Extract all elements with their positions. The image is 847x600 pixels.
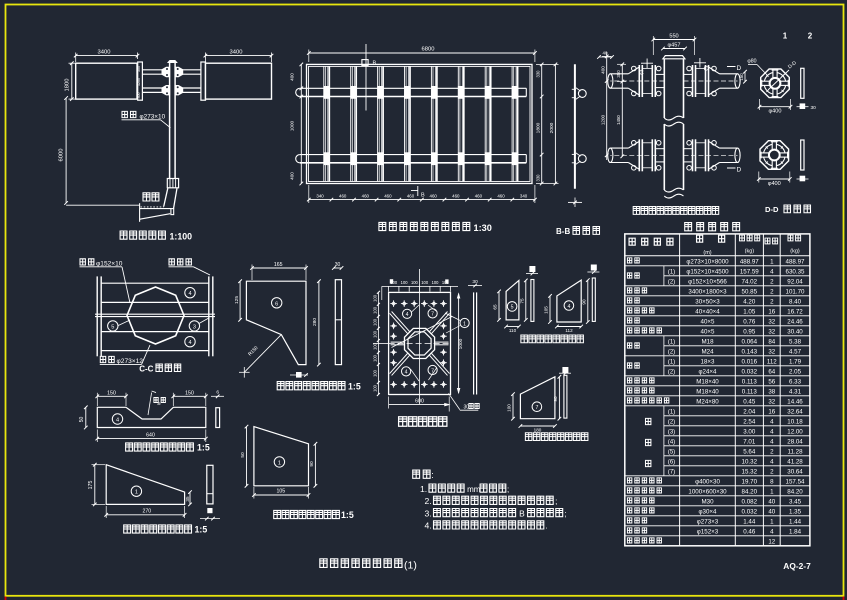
svg-text:75: 75 — [519, 298, 524, 304]
svg-text:2000: 2000 — [549, 122, 555, 133]
svg-text:100: 100 — [411, 280, 419, 285]
svg-text:3: 3 — [193, 324, 196, 330]
svg-text:32: 32 — [768, 349, 775, 356]
svg-text:B: B — [519, 508, 525, 518]
svg-text:30.40: 30.40 — [787, 329, 803, 336]
svg-text:4: 4 — [188, 291, 191, 297]
svg-text:18×3: 18×3 — [701, 359, 715, 366]
svg-text:460: 460 — [407, 194, 415, 199]
svg-text:84.20: 84.20 — [742, 489, 758, 496]
svg-text:1.05: 1.05 — [743, 309, 756, 316]
svg-text:φ80: φ80 — [747, 59, 756, 65]
svg-text:165: 165 — [274, 262, 283, 268]
svg-text:6800: 6800 — [422, 47, 435, 53]
svg-text:4.20: 4.20 — [743, 299, 756, 306]
svg-text:105: 105 — [544, 306, 549, 314]
svg-text:40: 40 — [603, 51, 608, 56]
svg-text:340: 340 — [316, 194, 324, 199]
svg-text:4: 4 — [770, 439, 774, 446]
svg-text:1:5: 1:5 — [197, 443, 210, 453]
svg-text:150: 150 — [185, 390, 194, 396]
svg-text:φ273×10×8000: φ273×10×8000 — [686, 259, 729, 266]
svg-text:3.: 3. — [425, 508, 432, 518]
svg-text:(1): (1) — [668, 360, 675, 366]
svg-text:460: 460 — [452, 194, 460, 199]
svg-text:B-B: B-B — [556, 227, 570, 236]
svg-text:2: 2 — [770, 289, 774, 296]
svg-text:7.01: 7.01 — [743, 439, 756, 446]
svg-text:157.54: 157.54 — [786, 479, 805, 486]
svg-text:(2): (2) — [668, 350, 675, 356]
svg-text:100: 100 — [401, 280, 409, 285]
svg-text:300: 300 — [137, 66, 141, 72]
svg-text:8: 8 — [770, 479, 774, 486]
svg-text:280: 280 — [312, 318, 318, 326]
svg-text:3.00: 3.00 — [743, 429, 756, 436]
svg-text:630.35: 630.35 — [786, 269, 805, 276]
svg-text:50: 50 — [79, 417, 85, 423]
svg-text:56: 56 — [768, 379, 775, 386]
svg-text:2.: 2. — [425, 496, 432, 506]
svg-text:(5): (5) — [668, 450, 675, 456]
svg-text:0.032: 0.032 — [742, 369, 758, 376]
svg-text:4: 4 — [770, 429, 774, 436]
svg-text:15.32: 15.32 — [742, 469, 758, 476]
svg-text:(3): (3) — [668, 430, 675, 436]
svg-text:32: 32 — [768, 329, 775, 336]
svg-text:2.05: 2.05 — [789, 369, 802, 376]
svg-text:460: 460 — [430, 194, 438, 199]
svg-text:1.35: 1.35 — [789, 509, 802, 516]
svg-text:M30: M30 — [701, 499, 714, 506]
svg-text:100: 100 — [372, 342, 377, 350]
svg-text:1.44: 1.44 — [789, 519, 802, 526]
svg-text:12.00: 12.00 — [787, 429, 803, 436]
svg-text:4: 4 — [770, 419, 774, 426]
svg-text:12: 12 — [768, 539, 775, 546]
svg-text:1.84: 1.84 — [789, 529, 802, 536]
svg-text:;: ; — [555, 497, 557, 506]
svg-text:330: 330 — [536, 174, 541, 182]
svg-text:4: 4 — [770, 529, 774, 536]
svg-text:1:5: 1:5 — [341, 510, 354, 520]
svg-text:0.016: 0.016 — [742, 359, 758, 366]
svg-text:100: 100 — [372, 384, 377, 392]
svg-text:.: . — [545, 522, 547, 531]
svg-text:0.76: 0.76 — [743, 319, 756, 326]
svg-text:φ400×30: φ400×30 — [695, 479, 720, 486]
svg-text:0.46: 0.46 — [743, 529, 756, 536]
svg-text:28.04: 28.04 — [787, 439, 803, 446]
svg-text:C-C: C-C — [139, 365, 153, 374]
svg-text:AQ-2-7: AQ-2-7 — [783, 561, 811, 571]
svg-text:8.40: 8.40 — [789, 299, 802, 306]
svg-text:460: 460 — [362, 194, 370, 199]
svg-text:16.72: 16.72 — [787, 309, 803, 316]
svg-text:6: 6 — [216, 390, 219, 396]
svg-text:24.46: 24.46 — [787, 319, 803, 326]
svg-text:M24×80: M24×80 — [696, 399, 719, 406]
svg-text:175: 175 — [88, 481, 94, 490]
svg-text:150: 150 — [107, 390, 116, 396]
svg-text:35: 35 — [185, 496, 190, 502]
svg-text:0.45: 0.45 — [743, 399, 756, 406]
svg-text:460: 460 — [384, 194, 392, 199]
svg-text:100: 100 — [372, 318, 377, 326]
svg-text:84: 84 — [768, 339, 775, 346]
svg-text:7: 7 — [535, 405, 538, 411]
svg-text:460: 460 — [475, 194, 483, 199]
svg-text:D: D — [737, 166, 742, 173]
svg-text:1: 1 — [278, 460, 281, 466]
svg-text:D: D — [737, 65, 742, 72]
svg-text:5: 5 — [511, 305, 514, 311]
svg-text:(kg): (kg) — [790, 249, 800, 255]
svg-text:(6): (6) — [668, 460, 675, 466]
svg-text:1800: 1800 — [536, 122, 542, 133]
svg-text:1: 1 — [770, 519, 774, 526]
svg-text:(2): (2) — [668, 370, 675, 376]
svg-text:40: 40 — [768, 509, 775, 516]
svg-text:19.70: 19.70 — [742, 479, 758, 486]
svg-text:100: 100 — [507, 404, 512, 412]
svg-text:φ24×4: φ24×4 — [699, 369, 718, 376]
svg-text:2.54: 2.54 — [743, 419, 756, 426]
svg-text:6: 6 — [275, 301, 278, 307]
svg-text:100: 100 — [421, 280, 429, 285]
svg-text:1.79: 1.79 — [789, 359, 802, 366]
svg-text:4.31: 4.31 — [789, 389, 802, 396]
svg-text:φ400: φ400 — [769, 109, 782, 115]
svg-text:100: 100 — [372, 354, 377, 362]
svg-text:;: ; — [507, 485, 509, 494]
svg-text:0.113: 0.113 — [742, 379, 758, 386]
svg-text:φ273×10: φ273×10 — [140, 113, 166, 120]
svg-text:1000×600×30: 1000×600×30 — [688, 489, 727, 496]
svg-text:φ30×4: φ30×4 — [699, 509, 718, 516]
svg-text::: : — [431, 470, 434, 480]
svg-text:400: 400 — [290, 73, 295, 81]
svg-text:(kg): (kg) — [745, 249, 755, 255]
svg-text:90: 90 — [581, 299, 586, 305]
svg-text:1450: 1450 — [616, 115, 621, 125]
svg-text:16: 16 — [768, 409, 775, 416]
svg-text:65: 65 — [493, 304, 498, 310]
svg-text:1:5: 1:5 — [348, 381, 361, 391]
svg-text:14.46: 14.46 — [787, 399, 803, 406]
svg-text:30: 30 — [811, 105, 817, 111]
svg-text:100: 100 — [372, 330, 377, 338]
svg-text:3.45: 3.45 — [789, 499, 802, 506]
svg-text:φ152×10×566: φ152×10×566 — [688, 279, 727, 286]
svg-text:150: 150 — [739, 73, 744, 81]
svg-text:330: 330 — [536, 70, 541, 78]
svg-text:84.20: 84.20 — [787, 489, 803, 496]
svg-text:270: 270 — [142, 508, 151, 514]
svg-text:M18: M18 — [701, 339, 714, 346]
svg-text:100: 100 — [372, 369, 377, 377]
svg-text:125: 125 — [234, 296, 240, 304]
svg-text:1: 1 — [783, 32, 788, 41]
svg-text:90: 90 — [309, 461, 315, 467]
svg-text:(m): (m) — [703, 250, 711, 256]
svg-text:488.97: 488.97 — [786, 259, 805, 266]
svg-text:300: 300 — [137, 93, 141, 99]
svg-text:0.143: 0.143 — [742, 349, 758, 356]
svg-text:1.44: 1.44 — [743, 519, 756, 526]
svg-text:4: 4 — [770, 459, 774, 466]
svg-text:64: 64 — [768, 369, 775, 376]
svg-text:101.70: 101.70 — [786, 289, 805, 296]
svg-text:0.082: 0.082 — [742, 499, 758, 506]
svg-text:(1): (1) — [404, 559, 417, 571]
svg-text:100: 100 — [372, 306, 377, 314]
svg-text:φ273×3: φ273×3 — [697, 519, 719, 526]
svg-text:0.95: 0.95 — [743, 329, 756, 336]
svg-text:(1): (1) — [668, 410, 675, 416]
svg-text:32.64: 32.64 — [787, 409, 803, 416]
svg-text:0.064: 0.064 — [742, 339, 758, 346]
svg-text:6000: 6000 — [59, 149, 65, 162]
svg-text:(1): (1) — [668, 270, 675, 276]
svg-text:φ152×3: φ152×3 — [697, 529, 719, 536]
svg-text:5.64: 5.64 — [743, 449, 756, 456]
svg-text:0.032: 0.032 — [742, 509, 758, 516]
svg-text:φ457: φ457 — [668, 43, 681, 49]
svg-text:1: 1 — [135, 490, 138, 496]
svg-text:10.18: 10.18 — [787, 419, 803, 426]
svg-text:4: 4 — [567, 304, 570, 310]
svg-text:74.02: 74.02 — [742, 279, 758, 286]
svg-text:4.: 4. — [425, 521, 432, 531]
svg-text:(2): (2) — [668, 420, 675, 426]
svg-text:4: 4 — [116, 418, 119, 424]
svg-text:2: 2 — [770, 469, 774, 476]
svg-text:B: B — [373, 61, 377, 67]
svg-text:112: 112 — [767, 359, 777, 366]
svg-text:40×5: 40×5 — [701, 319, 715, 326]
svg-text:30: 30 — [472, 279, 478, 285]
svg-text:11.28: 11.28 — [787, 449, 803, 456]
svg-text:38: 38 — [768, 389, 775, 396]
svg-text:2: 2 — [770, 449, 774, 456]
svg-text:41.28: 41.28 — [787, 459, 803, 466]
svg-text:460: 460 — [339, 194, 347, 199]
svg-text:3400×1800×3: 3400×1800×3 — [688, 289, 727, 296]
svg-text:φ152×10×4500: φ152×10×4500 — [686, 269, 729, 276]
svg-text:5.38: 5.38 — [789, 339, 802, 346]
svg-text:600: 600 — [415, 398, 424, 404]
svg-text:40×5: 40×5 — [701, 329, 715, 336]
svg-text:32: 32 — [768, 319, 775, 326]
svg-text:4: 4 — [406, 312, 409, 318]
svg-text:1000: 1000 — [458, 338, 464, 349]
svg-text:1:5: 1:5 — [195, 525, 208, 535]
svg-text:7: 7 — [431, 312, 434, 318]
svg-text:1:100: 1:100 — [170, 231, 193, 241]
svg-text:C: C — [704, 66, 709, 73]
svg-text:5: 5 — [111, 324, 114, 330]
svg-text:4: 4 — [770, 269, 774, 276]
svg-text:mm: mm — [467, 485, 481, 494]
svg-text:(7): (7) — [668, 470, 675, 476]
svg-text:(1): (1) — [668, 340, 675, 346]
svg-text:30×50×3: 30×50×3 — [695, 299, 720, 306]
svg-text:M18×40: M18×40 — [696, 379, 719, 386]
svg-text:157.59: 157.59 — [740, 269, 759, 276]
svg-text:488.97: 488.97 — [740, 259, 759, 266]
svg-text:2: 2 — [770, 279, 774, 286]
svg-text:16: 16 — [768, 309, 775, 316]
svg-text:10.32: 10.32 — [742, 459, 758, 466]
svg-text:1800: 1800 — [64, 79, 70, 92]
svg-text:3400: 3400 — [98, 50, 111, 56]
svg-text:400: 400 — [290, 172, 295, 180]
svg-text:340: 340 — [520, 194, 528, 199]
svg-text:400: 400 — [600, 66, 605, 74]
svg-text:M24: M24 — [701, 349, 714, 356]
svg-text:4: 4 — [405, 370, 408, 376]
svg-text:32: 32 — [768, 399, 775, 406]
svg-text:1:30: 1:30 — [474, 223, 492, 233]
svg-text:180: 180 — [534, 428, 542, 433]
svg-text:40×40×4: 40×40×4 — [695, 309, 720, 316]
svg-text:2.04: 2.04 — [743, 409, 756, 416]
svg-text:92.04: 92.04 — [787, 279, 803, 286]
svg-text:2: 2 — [770, 299, 774, 306]
svg-text:100: 100 — [432, 280, 440, 285]
svg-text:(2): (2) — [668, 280, 675, 286]
svg-text:3400: 3400 — [230, 50, 243, 56]
svg-text:30: 30 — [335, 262, 341, 268]
svg-text:112: 112 — [565, 328, 573, 333]
svg-text:D-D: D-D — [765, 205, 779, 214]
svg-text:1: 1 — [770, 489, 774, 496]
svg-text:1: 1 — [770, 259, 774, 266]
svg-text:6.33: 6.33 — [789, 379, 802, 386]
svg-text:30: 30 — [464, 405, 470, 411]
svg-text:2: 2 — [808, 32, 813, 41]
svg-text:C: C — [639, 70, 644, 77]
svg-text:M18×40: M18×40 — [696, 389, 719, 396]
svg-text:4.57: 4.57 — [789, 349, 802, 356]
svg-text:1.: 1. — [420, 484, 427, 494]
svg-text:30.64: 30.64 — [787, 469, 803, 476]
svg-text:550: 550 — [669, 34, 678, 40]
svg-text:1000: 1000 — [290, 120, 295, 131]
svg-text:50.85: 50.85 — [742, 289, 758, 296]
svg-text:φ400: φ400 — [768, 181, 781, 187]
svg-text:0.113: 0.113 — [742, 389, 758, 396]
svg-text:640: 640 — [146, 432, 155, 438]
svg-text:1200: 1200 — [600, 114, 605, 125]
svg-text:;: ; — [564, 509, 566, 518]
svg-text:90: 90 — [553, 396, 558, 402]
svg-text:460: 460 — [497, 194, 505, 199]
svg-text:(4): (4) — [668, 440, 675, 446]
svg-text:1: 1 — [463, 321, 466, 327]
svg-text:4: 4 — [188, 340, 191, 346]
svg-text:105: 105 — [276, 489, 285, 495]
svg-text:40: 40 — [768, 499, 775, 506]
svg-text:110: 110 — [509, 328, 517, 333]
svg-text:50: 50 — [240, 452, 246, 458]
svg-text:100: 100 — [372, 294, 377, 302]
svg-text:B: B — [421, 193, 425, 199]
svg-text:1200: 1200 — [137, 78, 141, 86]
